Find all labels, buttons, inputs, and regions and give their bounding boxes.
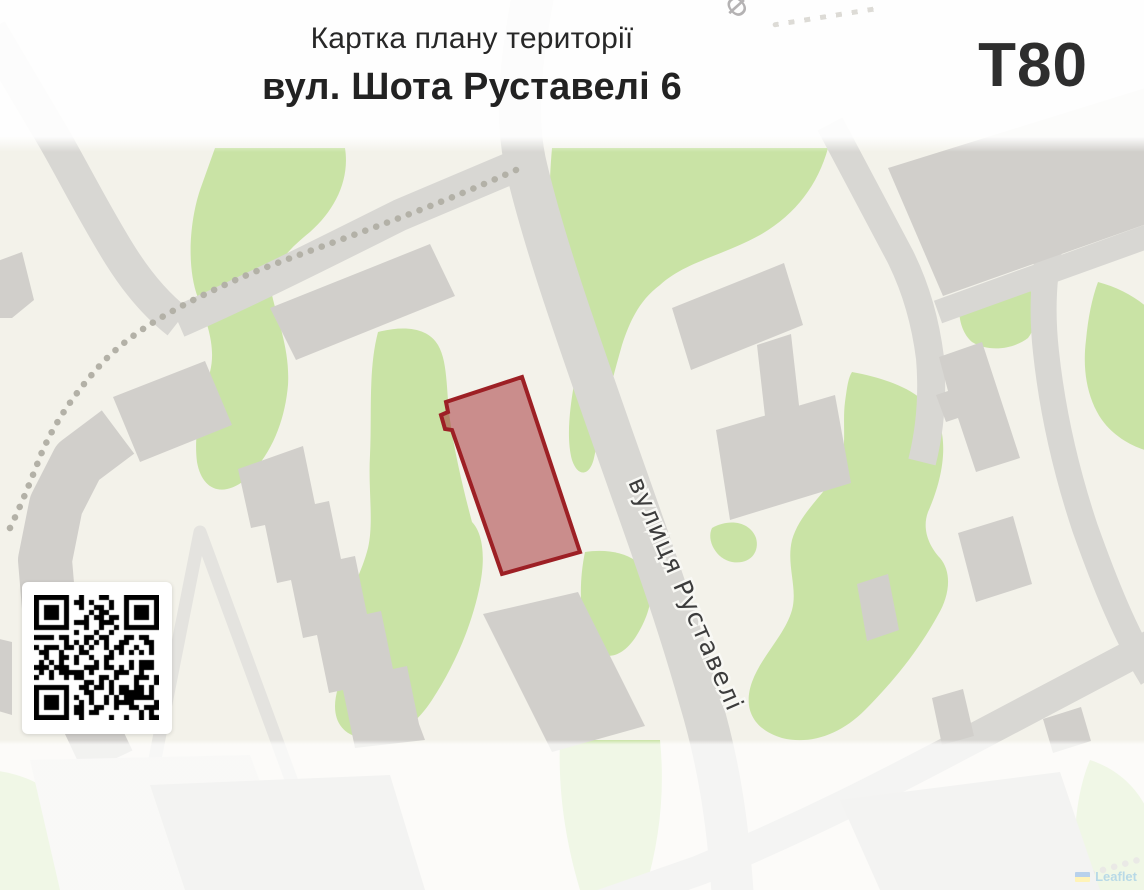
territory-code: T80	[978, 30, 1088, 101]
building	[932, 689, 974, 745]
qr-code	[22, 582, 172, 734]
green-area	[1085, 282, 1144, 452]
building	[936, 342, 1020, 472]
header-titles: Картка плану території вул. Шота Руставе…	[0, 0, 944, 109]
page-title: вул. Шота Руставелі 6	[0, 66, 944, 109]
page-subtitle: Картка плану території	[0, 22, 944, 56]
building	[958, 516, 1032, 602]
green-area	[710, 523, 757, 563]
footer-overlay	[0, 740, 1144, 890]
building	[0, 638, 12, 715]
qr-canvas	[34, 595, 159, 720]
map-card-screen: вулиця Руставелі Leaflet Ф Картка плану …	[0, 0, 1144, 890]
building	[0, 252, 34, 318]
